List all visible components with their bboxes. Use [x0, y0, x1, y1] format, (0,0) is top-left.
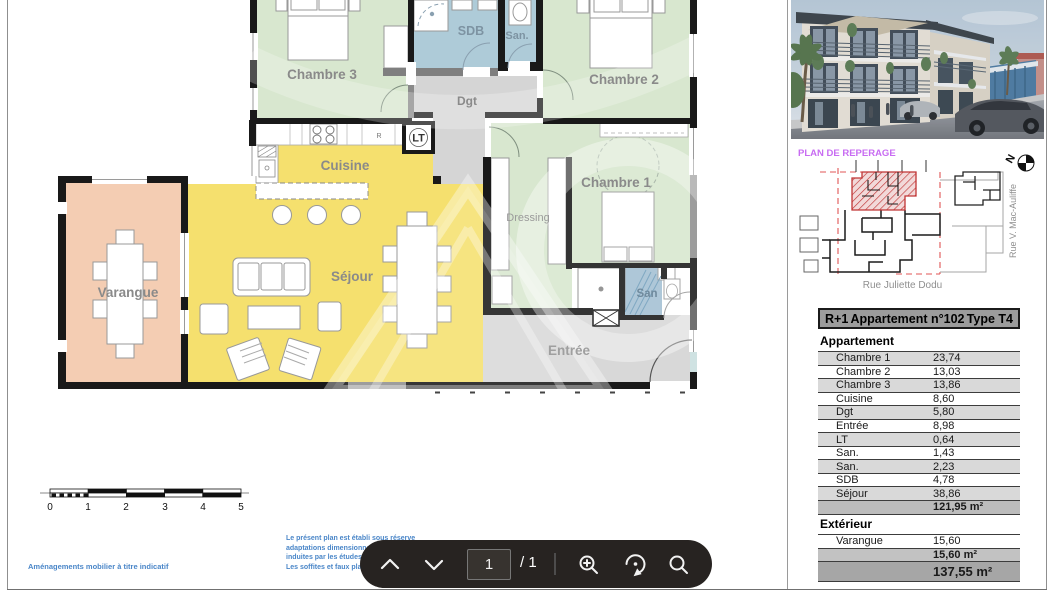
svg-text:Dressing: Dressing [506, 212, 549, 224]
svg-text:San: San [636, 288, 657, 300]
svg-text:5: 5 [238, 502, 244, 513]
svg-text:San.: San. [505, 30, 528, 42]
svg-text:3: 3 [162, 502, 168, 513]
svg-text:SDB: SDB [458, 24, 484, 38]
svg-text:LT: LT [412, 133, 425, 145]
svg-text:Varangue: Varangue [98, 285, 159, 300]
svg-text:Cuisine: Cuisine [321, 158, 370, 173]
svg-text:Dgt: Dgt [457, 94, 477, 108]
svg-text:Chambre 3: Chambre 3 [287, 67, 357, 82]
svg-text:1: 1 [85, 502, 91, 513]
svg-text:R: R [376, 133, 381, 140]
svg-text:0: 0 [47, 502, 53, 513]
svg-text:Séjour: Séjour [331, 269, 374, 284]
svg-text:4: 4 [200, 502, 206, 513]
svg-text:Chambre 2: Chambre 2 [589, 72, 659, 87]
svg-text:Entrée: Entrée [548, 343, 591, 358]
svg-text:2: 2 [123, 502, 129, 513]
svg-text:Chambre 1: Chambre 1 [581, 175, 651, 190]
